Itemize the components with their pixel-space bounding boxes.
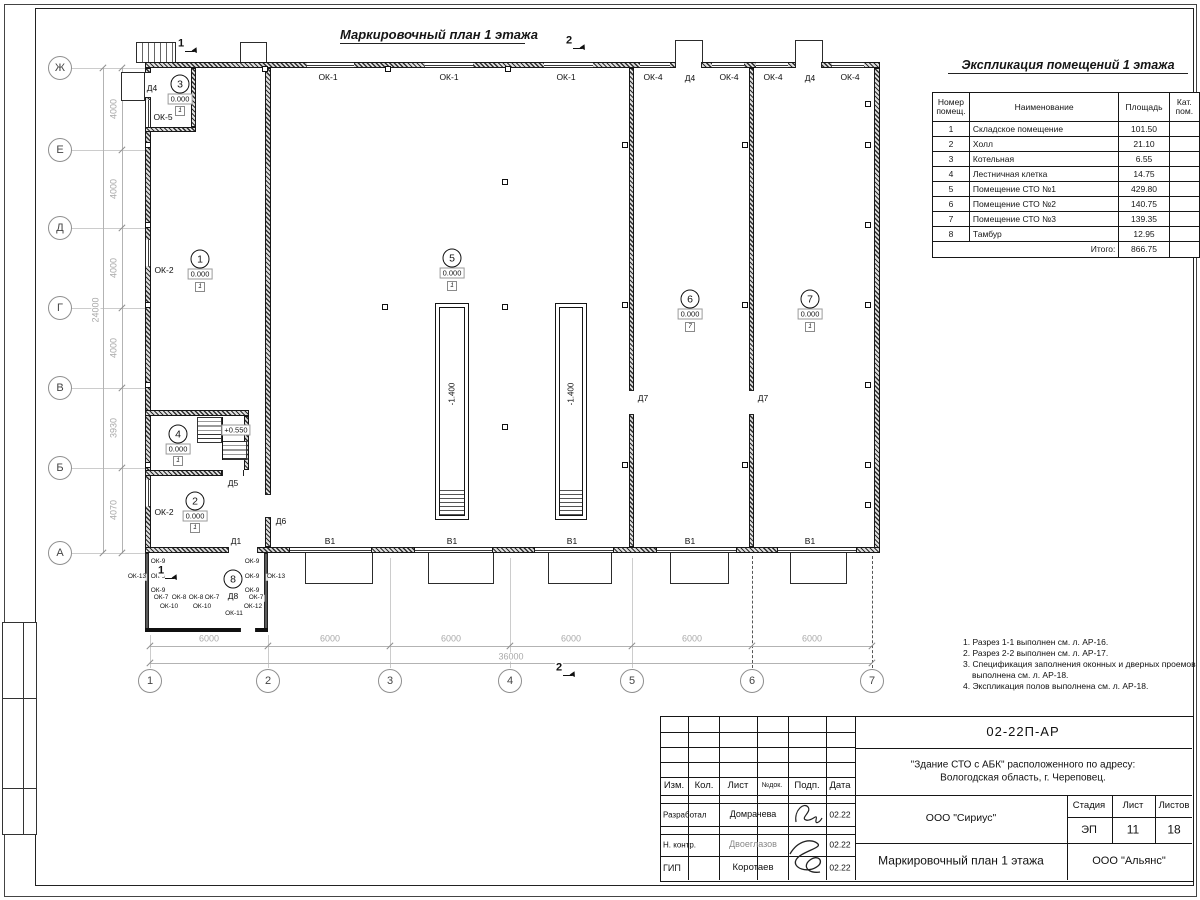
grid-line [632,558,633,668]
tb-date: 02.22 [829,840,850,849]
room-number-marker: 2 [186,492,205,511]
column-square [145,142,151,148]
plan-label: Д1 [230,537,242,546]
column-square [742,302,748,308]
axis-row-marker: Ж [48,56,72,80]
grid-line [72,553,145,554]
wall-segment [629,68,634,547]
window-opening [290,547,371,553]
wall-segment [874,68,880,553]
window-opening [145,240,151,266]
dimension-label: 4000 [110,178,119,200]
wall-segment [145,410,249,416]
plan-label: ОК-10 [192,604,212,611]
table-row-cell: Складское помещение [969,122,1118,137]
dimension-label: 4000 [110,98,119,120]
elevation-label: 0.000 [798,309,823,320]
column-square [865,502,871,508]
note-line: 1. Разрез 1-1 выполнен см. л. АР-16. [963,637,1200,648]
tb-org: ООО "Сириус" [926,813,996,825]
floor-type-marker: 1 [173,456,183,466]
plan-label: ОК-4 [642,73,663,82]
table-row-cell: Помещение СТО №2 [969,197,1118,212]
dimension-label: 36000 [497,653,524,662]
room-number-marker: 6 [681,290,700,309]
plan-label: В1 [804,537,816,546]
porch [240,42,267,63]
column-square [865,302,871,308]
table-row-cell: 2 [933,137,970,152]
table-row-cell [1169,197,1199,212]
tb-sheet-label: Лист [1123,801,1144,811]
wall-segment [145,470,222,476]
tb-header-data: Дата [829,781,850,791]
column-square [145,462,151,468]
column-square [502,179,508,185]
door-opening [795,62,822,68]
porch [795,40,823,63]
signature-scribble [792,800,824,830]
wall-segment [749,68,754,547]
column-square [865,382,871,388]
plan-label: ОК-7 [153,595,170,602]
table-row-cell: 5 [933,182,970,197]
window-opening [640,62,670,68]
column-square [742,462,748,468]
axis-row-marker: Г [48,296,72,320]
window-opening [778,547,856,553]
plan-label: Д5 [227,479,239,488]
table-row-cell: 7 [933,212,970,227]
plan-label: В1 [684,537,696,546]
table-header-cell: Номер помещ. [933,93,970,122]
plan-label: ОК-9 [244,559,261,566]
inspection-pit: -1.400 [435,303,469,520]
column-square [622,462,628,468]
table-row-cell: Тамбур [969,227,1118,242]
floor-type-marker: 1 [195,282,205,292]
plan-label: Д8 [227,592,239,601]
porch [675,40,703,63]
window-opening [544,62,593,68]
plan-label: ОК-5 [152,113,173,122]
plan-label: Д4 [146,84,158,93]
plan-label: ОК-12 [243,604,263,611]
table-row-cell: 12.95 [1119,227,1169,242]
wall-segment [613,547,657,553]
elevation-label: 0.000 [166,444,191,455]
porch [136,42,176,63]
grid-line [72,150,145,151]
dimension-label: 6000 [681,635,703,644]
plan-label: ОК-2 [153,266,174,275]
room-number-marker: 3 [171,75,190,94]
elevation-label: 0.000 [440,268,465,279]
grid-line [72,468,145,469]
plan-label: ОК-7 [204,595,221,602]
room-number-marker: 4 [169,425,188,444]
table-row-cell: 21.10 [1119,137,1169,152]
inspection-pit-inner [559,307,583,516]
axis-row-marker: В [48,376,72,400]
column-square [502,424,508,430]
dimension-label: 6000 [440,635,462,644]
column-square [145,382,151,388]
table-row-cell: 1 [933,122,970,137]
note-line: 2. Разрез 2-2 выполнен см. л. АР-17. [963,648,1200,659]
column-square [622,302,628,308]
landing-elevation-label: +0.550 [221,425,250,436]
table-total-label: Итого: [933,242,1119,258]
door-opening [749,390,754,415]
room-number-marker: 8 [224,570,243,589]
room-number-marker: 5 [443,249,462,268]
section-marker: 2 [555,663,563,674]
section-marker: 2 [565,36,573,47]
window-opening [145,480,151,506]
tb-company: ООО "Альянс" [1092,855,1166,867]
pit-elevation-label: -1.400 [448,381,457,408]
column-square [865,142,871,148]
explication-title: Экспликация помещений 1 этажа [948,58,1188,74]
table-row-cell: Помещение СТО №3 [969,212,1118,227]
table-total-value: 866.75 [1119,242,1169,258]
wall-segment [145,553,149,632]
tb-name: Домрачева [730,810,777,820]
wall-segment [371,547,415,553]
door-opening [222,470,244,476]
table-header-cell: Площадь [1119,93,1169,122]
table-row-cell: 101.50 [1119,122,1169,137]
door-opening [228,547,258,553]
elevation-label: 0.000 [183,511,208,522]
axis-col-marker: 6 [740,669,764,693]
tb-date: 02.22 [829,863,850,872]
plan-label: Д6 [275,517,287,526]
note-line: 3. Спецификация заполнения оконных и две… [963,659,1200,681]
dimension-line [150,663,872,664]
plan-label: ОК-1 [555,73,576,82]
grid-line [72,308,145,309]
axis-row-marker: Б [48,456,72,480]
dash-axis-line [752,556,753,668]
section-marker: 1 [177,39,185,50]
dimension-label: 6000 [319,635,341,644]
plan-label: ОК-4 [762,73,783,82]
column-square [742,142,748,148]
tb-header-ndok: №док. [762,782,783,790]
table-row-cell [1169,182,1199,197]
table-row-cell: Холл [969,137,1118,152]
tb-sheet-title: Маркировочный план 1 этажа [878,854,1044,867]
plan-label: ОК-4 [718,73,739,82]
table-header-cell: Наименование [969,93,1118,122]
dimension-line [103,68,104,553]
plan-label: ОК-10 [159,604,179,611]
window-opening [712,62,744,68]
tb-header-kol: Кол. [695,781,714,791]
window-opening [756,62,788,68]
gate-ramp [548,553,612,584]
gate-ramp [428,553,494,584]
elevation-label: 0.000 [188,269,213,280]
pit-ladder [440,490,464,515]
column-square [385,66,391,72]
grid-line [390,558,391,668]
section-marker-arrow [580,44,588,52]
axis-col-marker: 3 [378,669,402,693]
plan-label: ОК-7 [248,595,265,602]
door-opening [240,628,256,632]
gate-ramp [790,553,847,584]
plan-label: В1 [446,537,458,546]
table-row-cell: 3 [933,152,970,167]
wall-segment [265,68,271,547]
column-square [145,302,151,308]
dash-axis-line [872,556,873,668]
plan-label: Д7 [637,394,649,403]
gate-ramp [670,553,729,584]
table-row-cell: 6.55 [1119,152,1169,167]
window-opening [657,547,736,553]
stairs-flight [197,417,222,443]
tb-stage-label: Стадия [1073,801,1105,811]
window-opening [535,547,613,553]
plan-label: В1 [324,537,336,546]
door-opening [675,62,702,68]
dimension-line [150,646,872,647]
wall-segment [145,127,196,132]
axis-col-marker: 2 [256,669,280,693]
window-opening [307,62,354,68]
plan-label: ОК-4 [839,73,860,82]
plan-label: ОК-11 [224,611,244,618]
door-opening [629,390,634,415]
window-opening [415,547,492,553]
axis-row-marker: Д [48,216,72,240]
elevation-label: 0.000 [678,309,703,320]
floor-type-marker: 1 [175,106,185,116]
plan-label: ОК-1 [438,73,459,82]
drawing-sheet: Маркировочный план 1 этажа ЖЕДГВБА123456… [0,0,1200,900]
dimension-label: 3930 [110,417,119,439]
porch [121,72,145,101]
section-marker-arrow [172,574,180,582]
column-square [502,304,508,310]
table-header-cell: Кат. пом. [1169,93,1199,122]
note-line: 4. Экспликация полов выполнена см. л. АР… [963,681,1200,692]
wall-segment [145,547,290,553]
dimension-label: 4000 [110,337,119,359]
axis-col-marker: 5 [620,669,644,693]
floor-type-marker: 7 [685,322,695,332]
column-square [622,142,628,148]
tb-sheet-value: 11 [1127,823,1139,836]
axis-col-marker: 7 [860,669,884,693]
table-row-cell: Помещение СТО №1 [969,182,1118,197]
table-row-cell: 14.75 [1119,167,1169,182]
column-square [382,304,388,310]
column-square [865,101,871,107]
table-row-cell [1169,122,1199,137]
plan-label: ОК-2 [153,508,174,517]
tb-header-izm: Изм. [664,781,684,791]
inspection-pit: -1.400 [555,303,587,520]
plan-label: Д4 [804,74,816,83]
stairs-flight [222,441,247,460]
grid-line [72,68,145,69]
dimension-label: 6000 [801,635,823,644]
plan-label: ОК-13 [127,574,147,581]
tb-project-line2: Вологодская область, г. Череповец. [940,773,1106,784]
dimension-line [122,68,123,553]
column-square [262,66,268,72]
column-square [865,462,871,468]
dimension-label: 4000 [110,257,119,279]
tb-sheets-label: Листов [1159,801,1190,811]
axis-row-marker: Е [48,138,72,162]
plan-label: ОК-9 [244,574,261,581]
tb-name: Коротаев [732,863,773,873]
dimension-label: 4070 [110,499,119,521]
plan-label: В1 [566,537,578,546]
tb-role: Н. контр. [663,841,696,850]
tb-project-line1: "Здание СТО с АБК" расположенного по адр… [911,760,1136,771]
floor-type-marker: 1 [805,322,815,332]
column-square [865,222,871,228]
axis-col-marker: 1 [138,669,162,693]
grid-line [72,228,145,229]
table-row-cell: 139.35 [1119,212,1169,227]
plan-label: ОК-8 [188,595,205,602]
room-number-marker: 1 [191,250,210,269]
table-row-cell: 4 [933,167,970,182]
wall-segment [492,547,535,553]
axis-col-marker: 4 [498,669,522,693]
dimension-label: 6000 [198,635,220,644]
table-row-cell: 6 [933,197,970,212]
stairs-divider [222,417,223,460]
tb-stage-value: ЭП [1081,824,1097,836]
signature-scribble [788,836,826,878]
wall-segment [736,547,778,553]
window-opening [145,100,151,127]
plan-label: ОК-13 [266,574,286,581]
table-cell [1169,242,1199,258]
table-row-cell: Котельная [969,152,1118,167]
tb-header-list: Лист [728,781,749,791]
tb-name: Двоеглазов [729,840,777,850]
section-marker-arrow [570,671,578,679]
tb-date: 02.22 [829,810,850,819]
door-opening [265,494,271,518]
table-row-cell [1169,227,1199,242]
section-marker: 1 [157,566,165,577]
plan-label: Д4 [684,74,696,83]
table-row-cell: 8 [933,227,970,242]
tb-doc-number: 02-22П-АР [986,725,1059,739]
notes-list: 1. Разрез 1-1 выполнен см. л. АР-16.2. Р… [963,637,1200,692]
tb-sheets-value: 18 [1167,823,1180,836]
room-number-marker: 7 [801,290,820,309]
plan-label: Д7 [757,394,769,403]
plan-label: ОК-1 [317,73,338,82]
inspection-pit-inner [439,307,465,516]
floor-type-marker: 1 [447,281,457,291]
wall-segment [264,553,268,632]
tb-role: Разработал [663,811,707,820]
tb-header-podp: Подп. [794,781,819,791]
column-square [145,222,151,228]
table-row-cell: Лестничная клетка [969,167,1118,182]
explication-table: Номер помещ.НаименованиеПлощадьКат. пом.… [932,92,1200,258]
axis-row-marker: А [48,541,72,565]
window-opening [425,62,473,68]
table-row-cell [1169,212,1199,227]
table-row-cell [1169,167,1199,182]
table-row-cell: 429.80 [1119,182,1169,197]
dimension-label: 24000 [92,296,101,323]
pit-ladder [560,490,582,515]
gate-ramp [305,553,373,584]
tb-role: ГИП [663,863,681,873]
elevation-label: 0.000 [168,94,193,105]
wall-segment [856,547,880,553]
window-opening [832,62,864,68]
table-row-cell [1169,137,1199,152]
plan-label: ОК-8 [171,595,188,602]
column-square [505,66,511,72]
grid-line [72,388,145,389]
pit-elevation-label: -1.400 [567,381,576,408]
table-row-cell [1169,152,1199,167]
section-marker-arrow [192,47,200,55]
table-row-cell: 140.75 [1119,197,1169,212]
dimension-label: 6000 [560,635,582,644]
floor-type-marker: 1 [190,523,200,533]
